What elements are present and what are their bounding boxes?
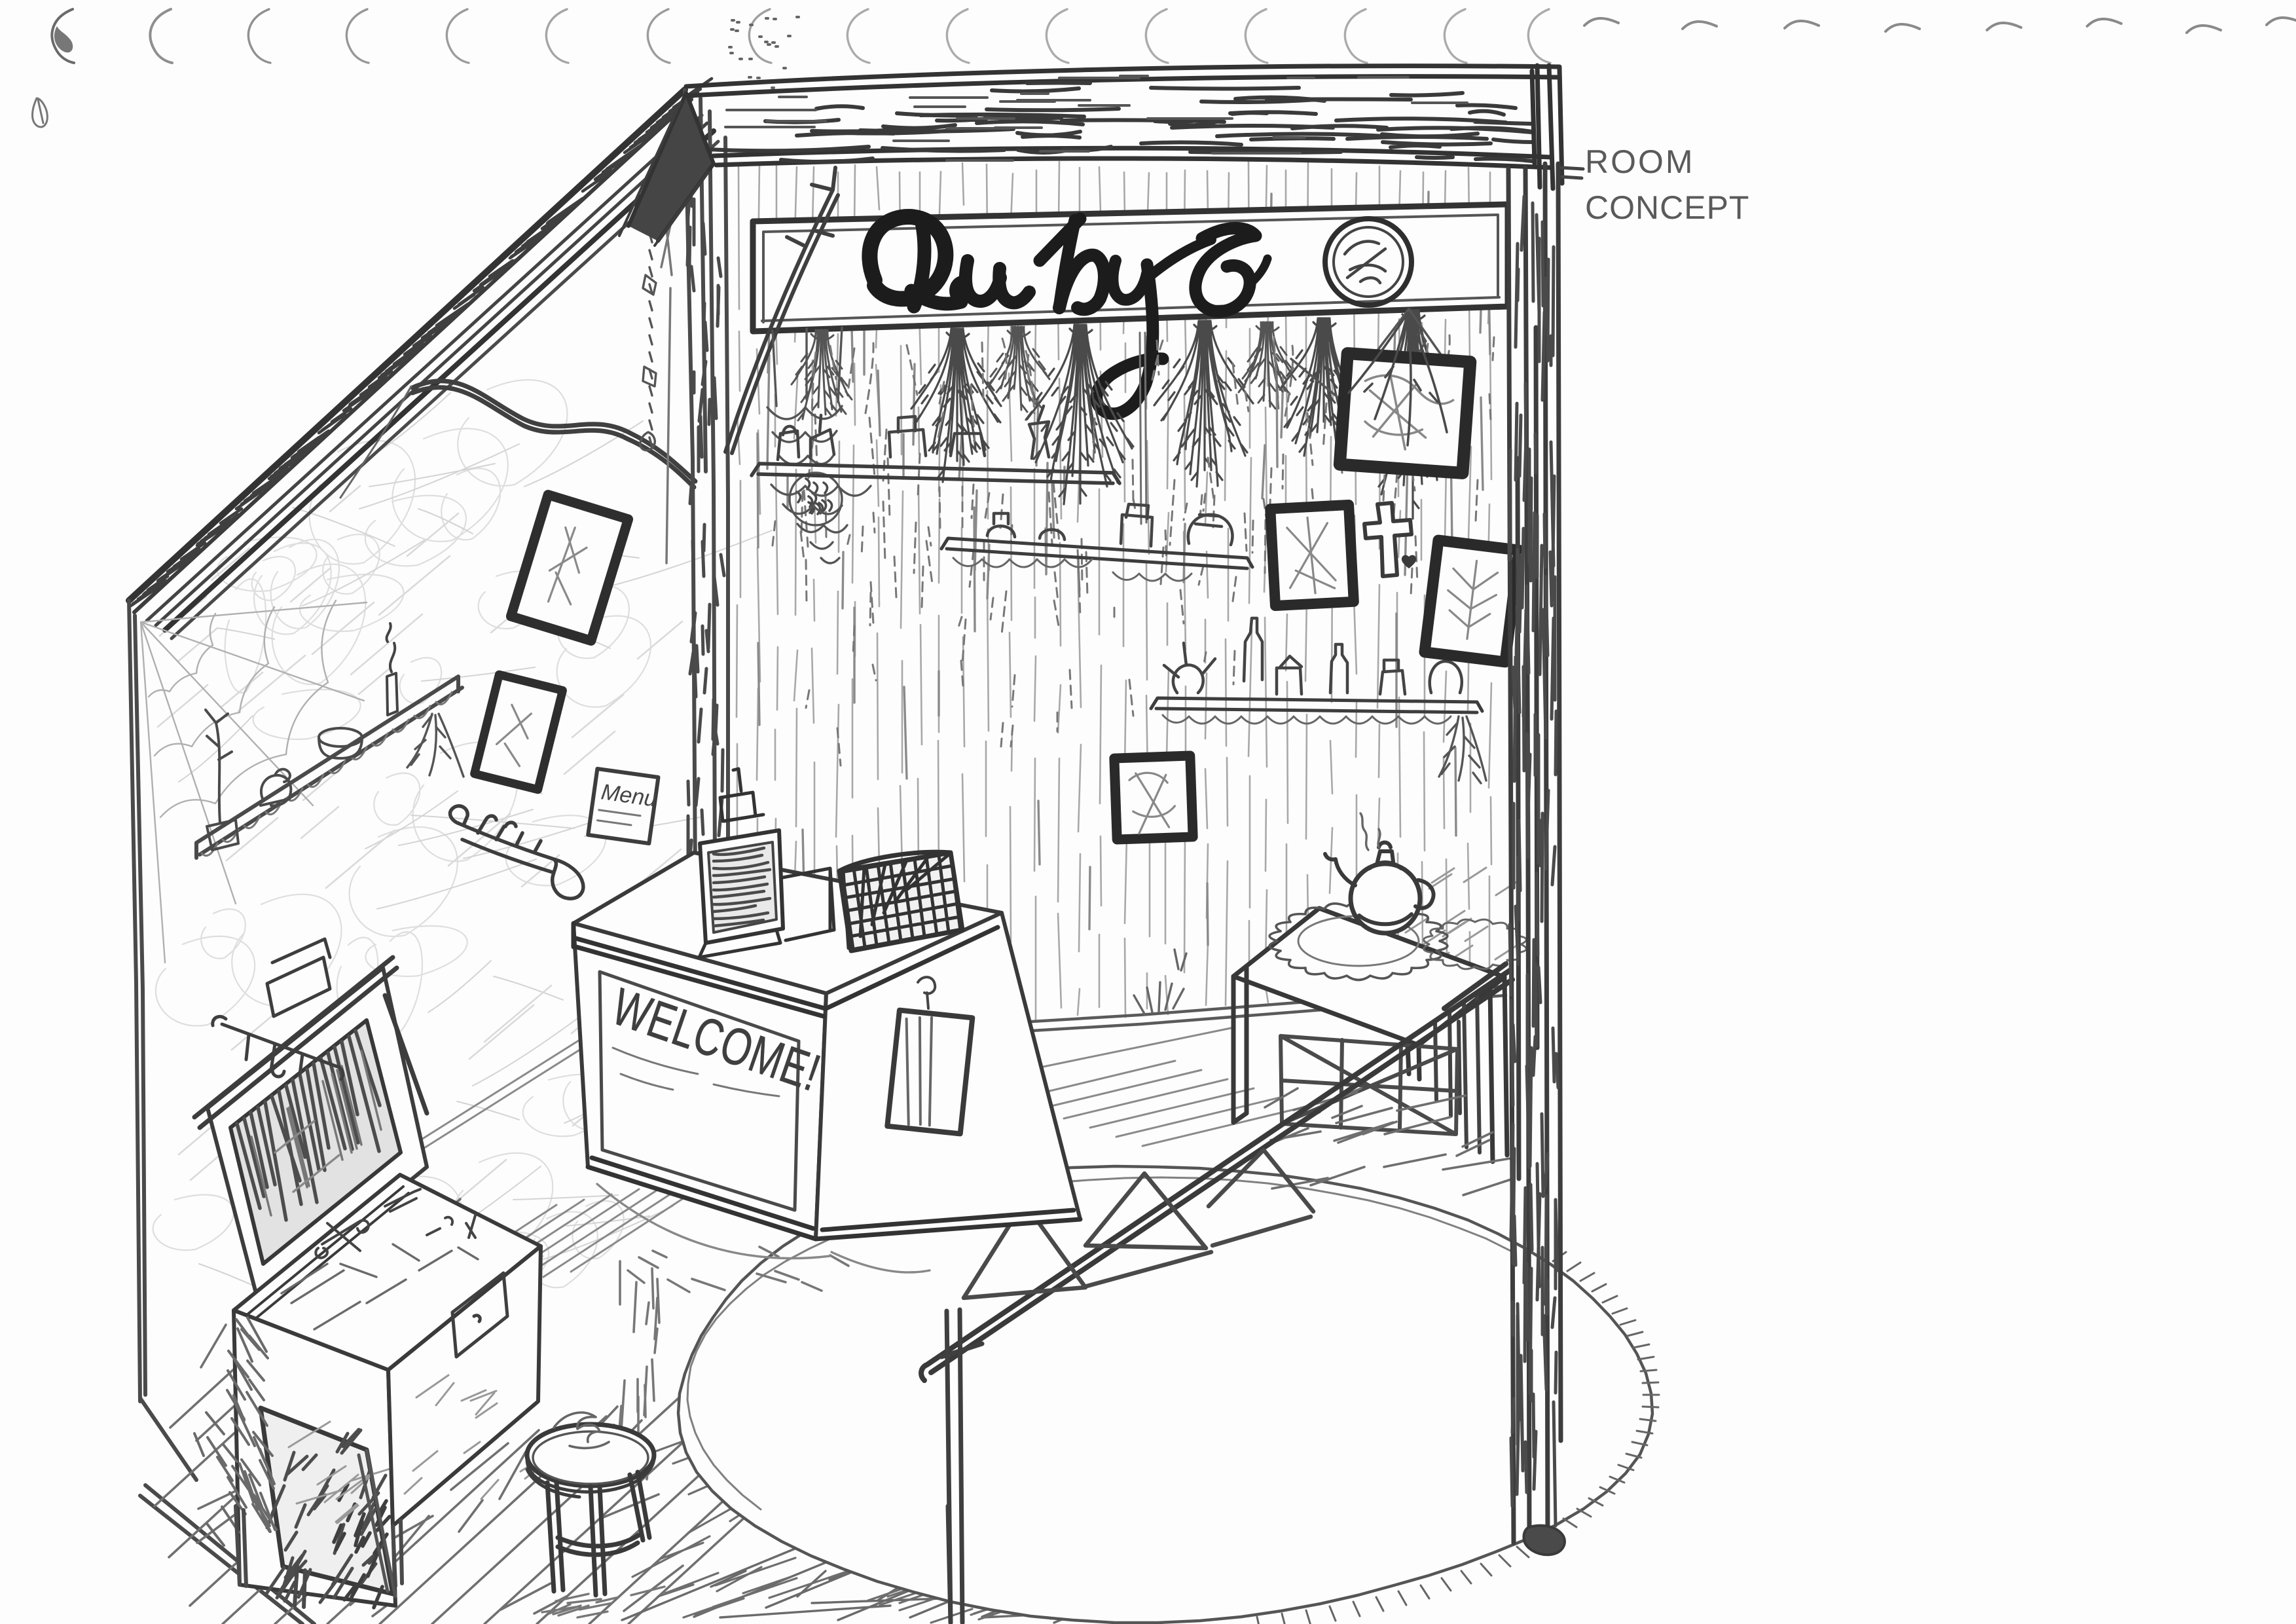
svg-text:ROOM: ROOM [1585,143,1695,180]
svg-text:CONCEPT: CONCEPT [1585,189,1749,226]
